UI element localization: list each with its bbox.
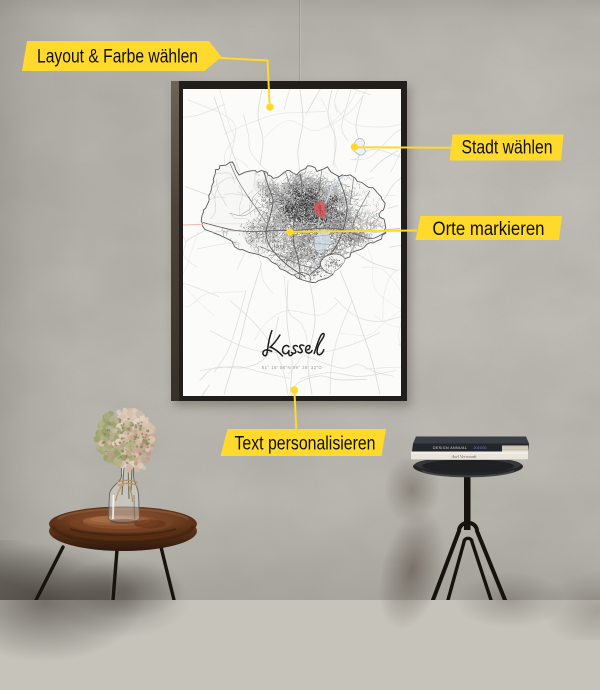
svg-text:Layout & Farbe wählen: Layout & Farbe wählen [37, 47, 198, 68]
svg-text:Text personalisieren: Text personalisieren [235, 434, 376, 455]
svg-text:Orte markieren: Orte markieren [433, 219, 545, 240]
svg-text:Stadt wählen: Stadt wählen [462, 138, 553, 159]
